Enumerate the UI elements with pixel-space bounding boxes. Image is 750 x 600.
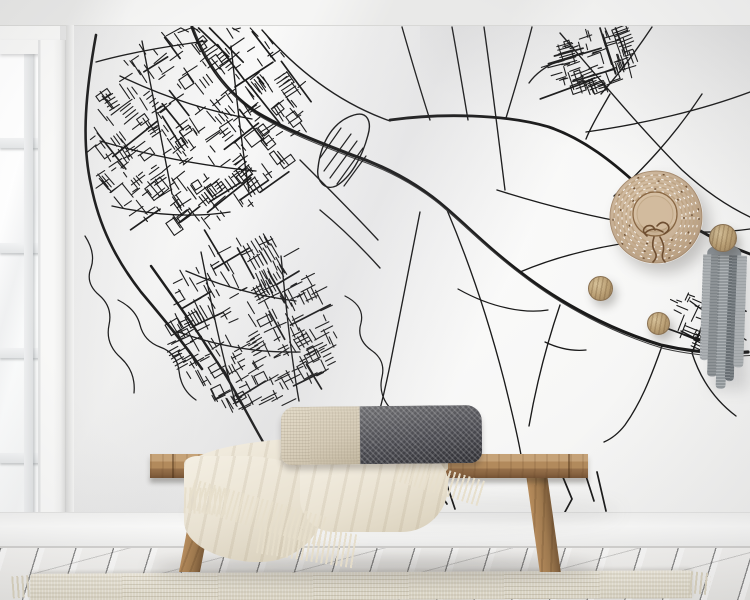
window-muntin — [0, 138, 40, 148]
window-muntin — [0, 453, 40, 463]
straw-hat-graphic — [609, 170, 703, 264]
pillow-dark-section — [360, 405, 483, 464]
rug-fringe — [11, 575, 33, 598]
wall-peg — [647, 312, 670, 335]
hanging-cloth — [698, 242, 749, 392]
wall-peg — [709, 224, 737, 252]
seat-seam — [568, 454, 570, 478]
seat-seam — [172, 454, 174, 478]
rug-fringe — [689, 571, 711, 595]
window-muntin — [0, 243, 40, 253]
bench-shadow — [150, 556, 600, 582]
pillow-beige-section — [281, 406, 361, 465]
wall-peg — [588, 276, 613, 301]
ceiling — [0, 0, 750, 26]
straw-hat — [609, 170, 703, 264]
wall-corner — [66, 25, 74, 548]
window-frame — [38, 40, 66, 560]
interior-photo — [0, 0, 750, 600]
lumbar-pillow — [281, 405, 483, 465]
window-muntin — [0, 348, 40, 358]
window-glass — [0, 48, 40, 548]
window-muntin — [24, 48, 33, 548]
